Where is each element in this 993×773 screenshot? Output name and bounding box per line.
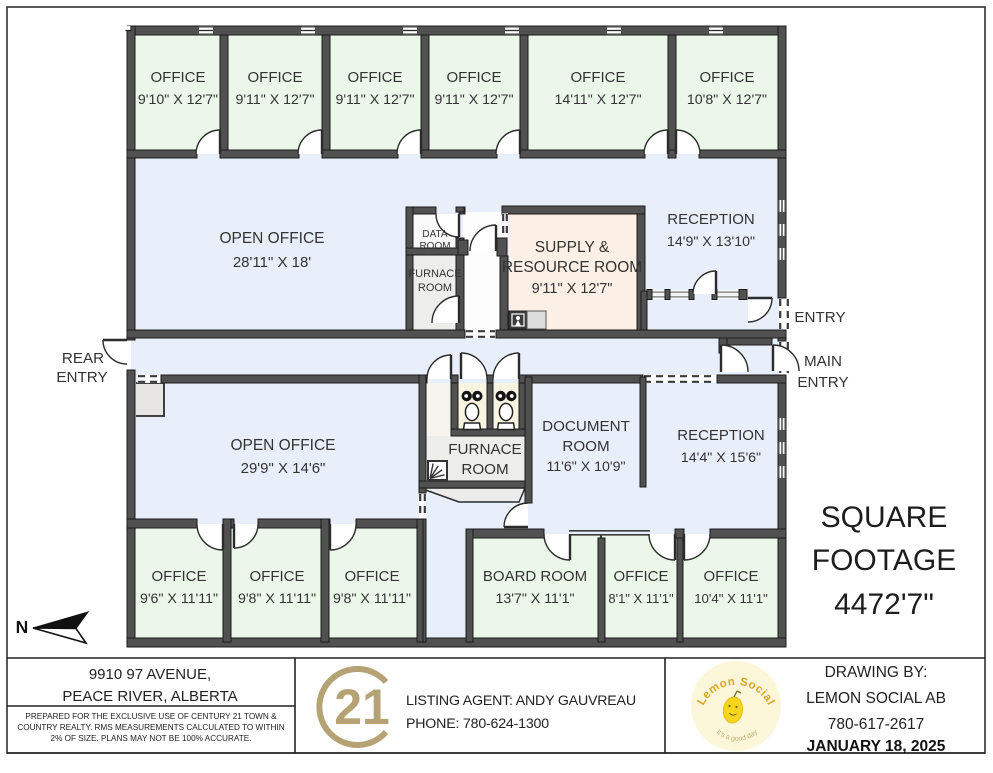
svg-text:14'11" X 12'7": 14'11" X 12'7"	[554, 92, 641, 108]
svg-text:RESOURCE ROOM: RESOURCE ROOM	[502, 259, 642, 276]
svg-text:9'11" X 12'7": 9'11" X 12'7"	[434, 92, 513, 108]
svg-text:N: N	[16, 617, 29, 637]
svg-text:BOARD ROOM: BOARD ROOM	[483, 568, 587, 585]
svg-text:COUNTRY REALTY. RMS MEASUREMEN: COUNTRY REALTY. RMS MEASUREMENTS CALCULA…	[17, 723, 284, 732]
svg-text:OFFICE: OFFICE	[152, 568, 207, 585]
svg-text:PEACE RIVER, ALBERTA: PEACE RIVER, ALBERTA	[62, 688, 237, 705]
svg-text:RECEPTION: RECEPTION	[667, 211, 755, 228]
svg-text:9'11" X 12'7": 9'11" X 12'7"	[335, 92, 414, 108]
svg-text:REAR: REAR	[62, 350, 104, 367]
svg-text:OFFICE: OFFICE	[248, 69, 303, 86]
svg-text:OFFICE: OFFICE	[250, 568, 305, 585]
svg-text:2% OF SIZE. PLANS MAY NOT BE 1: 2% OF SIZE. PLANS MAY NOT BE 100% ACCURA…	[51, 734, 252, 743]
svg-text:9'11" X 12'7": 9'11" X 12'7"	[235, 92, 314, 108]
svg-text:9'11" X 12'7": 9'11" X 12'7"	[532, 281, 613, 297]
svg-text:9910 97 AVENUE,: 9910 97 AVENUE,	[89, 666, 211, 683]
svg-text:ENTRY: ENTRY	[56, 369, 107, 386]
svg-text:SUPPLY &: SUPPLY &	[535, 239, 610, 256]
svg-text:FURNACE: FURNACE	[448, 441, 521, 458]
svg-text:10'4" X 11'1": 10'4" X 11'1"	[694, 591, 768, 606]
svg-text:780-617-2617: 780-617-2617	[828, 716, 925, 733]
svg-text:OFFICE: OFFICE	[614, 568, 669, 585]
svg-text:9'10" X 12'7": 9'10" X 12'7"	[138, 92, 218, 108]
svg-text:PREPARED FOR THE EXCLUSIVE USE: PREPARED FOR THE EXCLUSIVE USE OF CENTUR…	[25, 712, 277, 721]
svg-text:10'8" X 12'7": 10'8" X 12'7"	[687, 92, 767, 108]
svg-text:DOCUMENT: DOCUMENT	[542, 418, 630, 435]
svg-text:ROOM: ROOM	[461, 461, 508, 478]
svg-text:OFFICE: OFFICE	[571, 69, 626, 86]
svg-text:MAIN: MAIN	[804, 353, 842, 370]
svg-text:8'1" X 11'1": 8'1" X 11'1"	[608, 591, 674, 606]
svg-text:SQUARE: SQUARE	[821, 501, 948, 534]
svg-text:11'6" X 10'9": 11'6" X 10'9"	[546, 459, 625, 475]
svg-text:FURNACE: FURNACE	[408, 268, 461, 280]
svg-text:ENTRY: ENTRY	[797, 374, 848, 391]
svg-text:14'4" X 15'6": 14'4" X 15'6"	[681, 450, 761, 466]
svg-text:OPEN OFFICE: OPEN OFFICE	[230, 437, 335, 454]
svg-text:28'11" X 18': 28'11" X 18'	[233, 254, 311, 271]
svg-text:29'9" X 14'6": 29'9" X 14'6"	[241, 460, 326, 477]
svg-text:OFFICE: OFFICE	[345, 568, 400, 585]
svg-text:ROOM: ROOM	[418, 282, 452, 294]
svg-text:DRAWING BY:: DRAWING BY:	[825, 664, 928, 681]
svg-text:RECEPTION: RECEPTION	[677, 427, 765, 444]
svg-text:ROOM: ROOM	[419, 241, 450, 252]
svg-text:LEMON SOCIAL AB: LEMON SOCIAL AB	[806, 690, 946, 707]
svg-text:9'8" X 11'11": 9'8" X 11'11"	[238, 591, 316, 607]
svg-text:9'6" X 11'11": 9'6" X 11'11"	[140, 591, 218, 607]
svg-text:OFFICE: OFFICE	[700, 69, 755, 86]
svg-text:4472'7": 4472'7"	[834, 588, 934, 621]
svg-text:JANUARY 18, 2025: JANUARY 18, 2025	[807, 738, 946, 755]
svg-text:13'7" X 11'1": 13'7" X 11'1"	[495, 591, 574, 607]
svg-text:OFFICE: OFFICE	[704, 568, 759, 585]
svg-text:OFFICE: OFFICE	[447, 69, 502, 86]
svg-text:OPEN OFFICE: OPEN OFFICE	[219, 230, 324, 247]
svg-text:OFFICE: OFFICE	[348, 69, 403, 86]
svg-text:14'9" X 13'10": 14'9" X 13'10"	[667, 234, 755, 250]
svg-text:FOOTAGE: FOOTAGE	[812, 544, 956, 577]
svg-text:9'8" X 11'11": 9'8" X 11'11"	[333, 591, 411, 607]
svg-text:OFFICE: OFFICE	[151, 69, 206, 86]
svg-text:PHONE: 780-624-1300: PHONE: 780-624-1300	[406, 716, 549, 732]
svg-text:ENTRY: ENTRY	[794, 309, 845, 326]
svg-text:LISTING AGENT: ANDY GAUVREAU: LISTING AGENT: ANDY GAUVREAU	[406, 693, 636, 709]
svg-text:21: 21	[334, 679, 390, 735]
svg-text:DATA: DATA	[422, 229, 448, 240]
svg-text:ROOM: ROOM	[562, 438, 609, 455]
